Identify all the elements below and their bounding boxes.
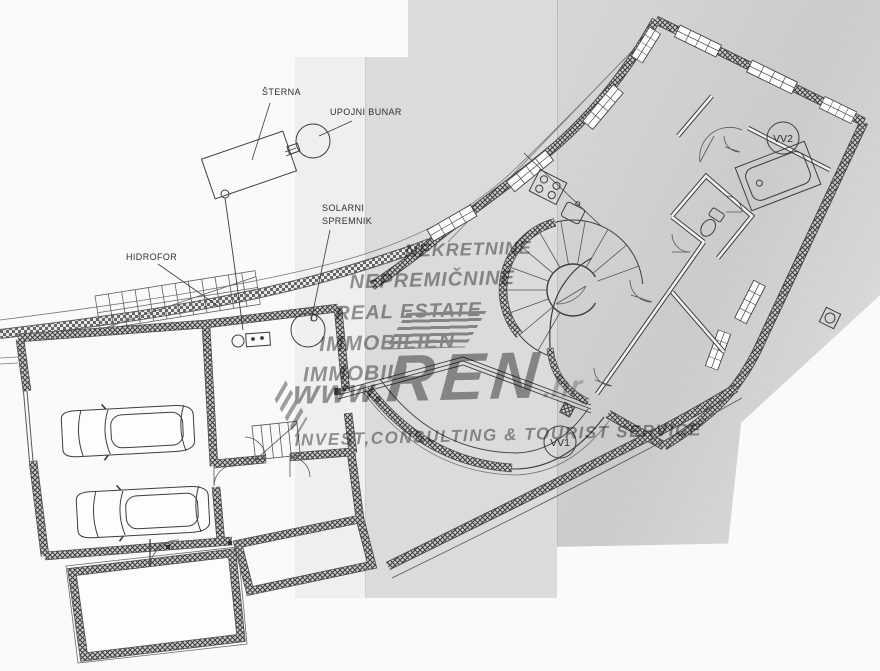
label-sterna: ŠTERNA [262,87,301,97]
bathroom-fixtures [697,141,840,328]
label-upojni-bunar: UPOJNI BUNAR [330,107,402,117]
garage-car-1 [61,400,196,463]
label-vv2: VV2 [773,133,793,145]
label-vv1: VV1 [550,437,570,449]
bottom-left-room [66,539,247,663]
label-hidrofor: HIDROFOR [126,252,177,262]
absorption-well-circle [296,124,330,158]
spiral-staircase [503,220,643,356]
kitchen-fixtures [524,153,601,226]
living-room-curved-wall [550,258,592,402]
lower-retaining-wall [388,388,742,578]
floor-plan-scan: ŠTERNA UPOJNI BUNAR SOLARNI SPREMNIK HID… [0,0,880,671]
label-solarni: SOLARNI [322,203,364,213]
garage-car-2 [76,481,211,544]
pipe-line [225,198,243,330]
floor-plan-drawing: ŠTERNA UPOJNI BUNAR SOLARNI SPREMNIK HID… [0,0,880,671]
label-spremnik: SPREMNIK [322,216,372,226]
